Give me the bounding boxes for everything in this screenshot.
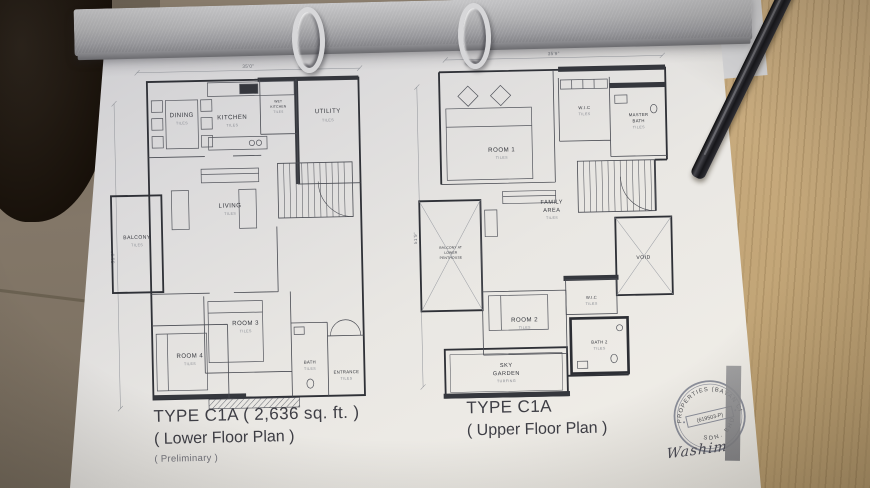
lower-plan-dim-top: 35'0" [242,64,254,70]
room-sub-room3: TILES [240,329,252,333]
room-label-void: VOID [636,255,651,261]
room-label-balcony-penthouse-1: BALCONY AT [439,245,462,249]
room-label-balcony-penthouse-2: LOWER [444,251,458,255]
lower-plan-title: TYPE C1A ( 2,636 sq. ft. ) ( Lower Floor… [153,403,360,465]
room-label-wet-kitchen-1: WET [274,99,282,103]
room-label-wet-kitchen-2: KITCHEN [270,104,286,108]
upper-plan-dim-top: 35'9" [548,51,560,56]
room-sub-wet-kitchen: TILES [273,110,284,114]
room-label-entrance: ENTRANCE [334,369,360,375]
room-label-balcony: BALCONY [123,235,151,242]
lower-plan-dim-side: 51'9" [110,251,116,263]
room-sub-room2: TILES [519,326,531,330]
room-sub-dining: TILES [176,121,188,125]
room-label-bath: BATH [304,359,316,364]
room-label-room2: ROOM 2 [511,316,538,324]
room-sub-bath: TILES [304,367,316,371]
room-label-room4: ROOM 4 [176,352,203,360]
room-label-room3: ROOM 3 [232,320,259,328]
room-sub-wic-master: TILES [578,112,590,116]
room-sub-living: TILES [224,212,236,216]
room-label-dining: DINING [170,112,194,120]
room-sub-entrance: TILES [340,376,352,380]
room-label-bath2: BATH 2 [591,339,608,344]
upper-plan-dimension-lines [414,53,672,390]
room-label-kitchen: KITCHEN [217,114,247,122]
gray-smudge-bar [725,366,741,461]
upper-floor-plan: 35'9" 51'9" [410,45,687,403]
room-sub-room1: TILES [496,156,508,160]
room-label-balcony-penthouse-3: PENTHOUSE [440,256,463,260]
lower-floor-plan: 35'0" 51'9" [106,56,386,430]
room-sub-master-bath: TILES [633,125,645,129]
room-sub-room4: TILES [184,362,196,366]
upper-plan-title-floor: ( Upper Floor Plan ) [467,419,608,440]
room-sub-sky-garden: TURFING [497,379,516,383]
photo-floor-plan-binder: 35'0" 51'9" [0,0,870,488]
room-sub-utility: TILES [322,118,334,122]
lower-plan-title-floor: ( Lower Floor Plan ) [154,427,360,449]
room-label-utility: UTILITY [315,108,341,116]
lower-plan-title-type: TYPE C1A ( 2,636 sq. ft. ) [153,403,359,427]
room-sub-family: TILES [546,216,558,220]
upper-plan-dim-side: 51'9" [413,232,418,244]
room-label-wic2: W.I.C [586,295,597,300]
lower-plan-title-preliminary: ( Preliminary ) [154,450,360,465]
room-label-living: LIVING [219,202,242,210]
room-sub-wic2: TILES [585,302,597,306]
room-label-master-bath-2: BATH [632,118,644,123]
room-label-family-1: FAMILY [540,199,563,205]
room-sub-kitchen: TILES [226,123,238,127]
room-label-sky-garden-2: GARDEN [493,371,520,378]
room-label-room1: ROOM 1 [488,146,515,154]
room-label-master-bath-1: MASTER [629,112,649,117]
room-label-family-2: AREA [543,208,560,214]
room-sub-bath2: TILES [593,346,605,350]
room-label-wic-master: W.I.C [578,105,590,110]
upper-plan-title-type: TYPE C1A [466,395,607,418]
upper-plan-title: TYPE C1A ( Upper Floor Plan ) [466,395,607,440]
room-sub-balcony: TILES [131,243,143,247]
room-label-sky-garden-1: SKY [500,363,513,369]
